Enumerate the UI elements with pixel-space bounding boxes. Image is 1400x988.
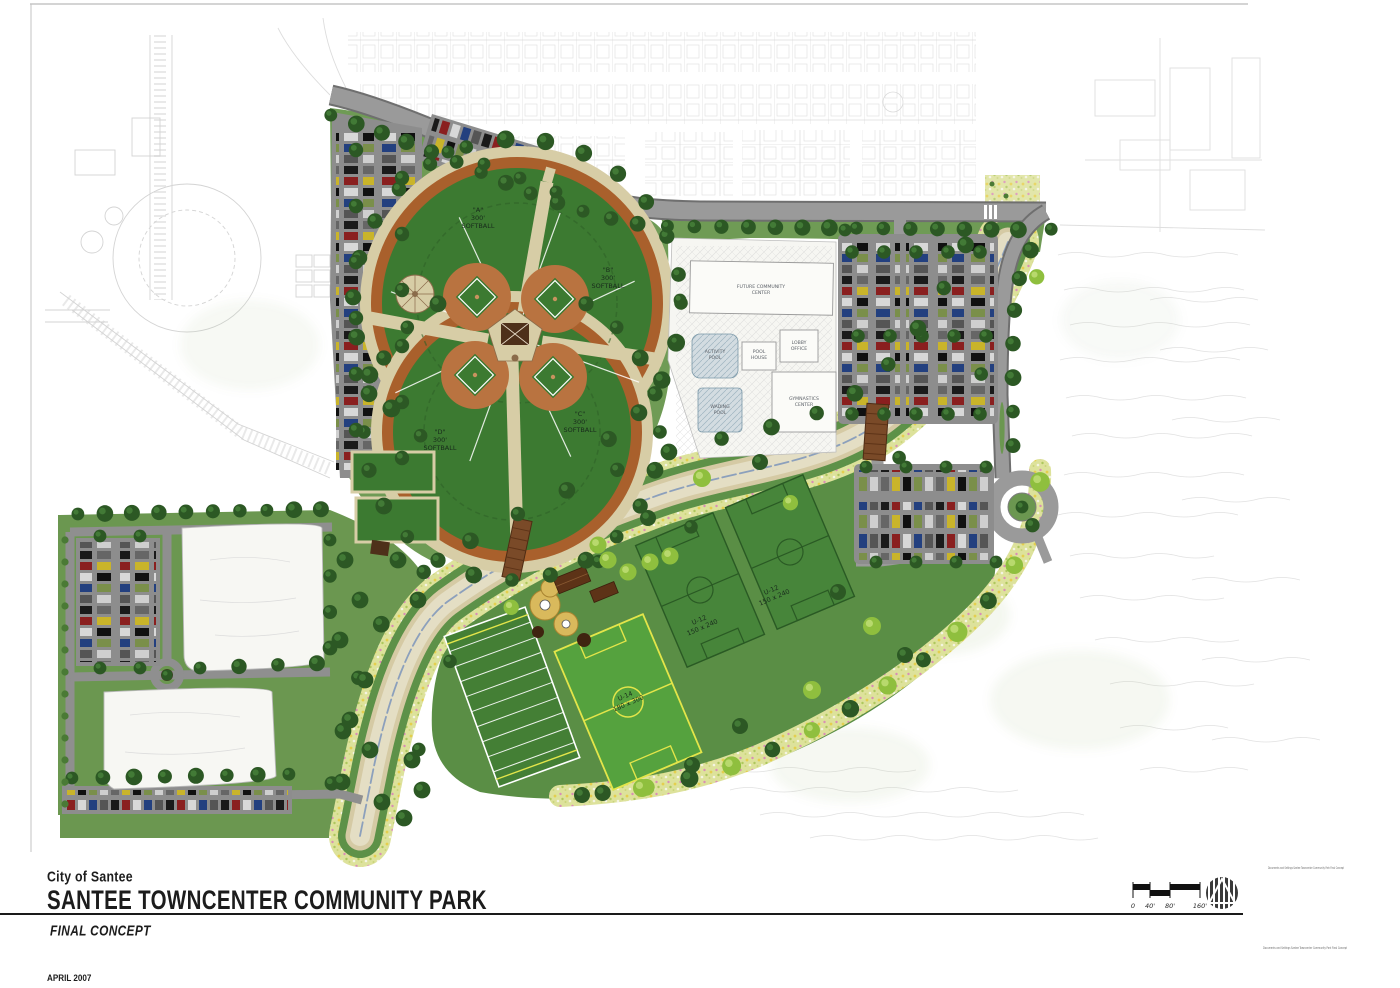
gymnastics-building <box>772 372 836 432</box>
title-block: City of Santee SANTEE TOWNCENTER COMMUNI… <box>47 868 583 914</box>
community-center-site <box>668 238 836 458</box>
crosswalk <box>984 205 997 219</box>
title-rule <box>0 913 1243 915</box>
page-title: SANTEE TOWNCENTER COMMUNITY PARK <box>47 885 487 916</box>
client-name: City of Santee <box>47 868 519 885</box>
file-note-bottom: Documents and Settings Santee Towncenter… <box>1263 946 1347 950</box>
date-label: APRIL 2007 <box>47 973 91 983</box>
scale-tick-80: 80' <box>1165 902 1175 910</box>
lobby-office-building <box>780 330 818 362</box>
plan-sheet: "A"300'SOFTBALL "B"300'SOFTBALL "C"300'S… <box>0 0 1400 988</box>
context-commercial <box>1060 38 1265 232</box>
restroom-building <box>370 540 390 556</box>
file-note-top: Documents and Settings Santee Towncenter… <box>1268 866 1344 870</box>
firm-logo <box>1206 877 1238 909</box>
site-plan-drawing: "A"300'SOFTBALL "B"300'SOFTBALL "C"300'S… <box>0 0 1400 988</box>
scale-tick-40: 40' <box>1145 902 1155 910</box>
context-existing-park <box>45 35 334 478</box>
road-median <box>999 402 1004 454</box>
scale-tick-160: 160' <box>1193 902 1207 910</box>
wading-pool <box>698 388 742 432</box>
scale-bar: 0 40' 80' 160' <box>1131 882 1207 910</box>
phase-label: FINAL CONCEPT <box>50 922 151 939</box>
concession-building <box>501 323 529 345</box>
scale-tick-0: 0 <box>1131 902 1135 910</box>
